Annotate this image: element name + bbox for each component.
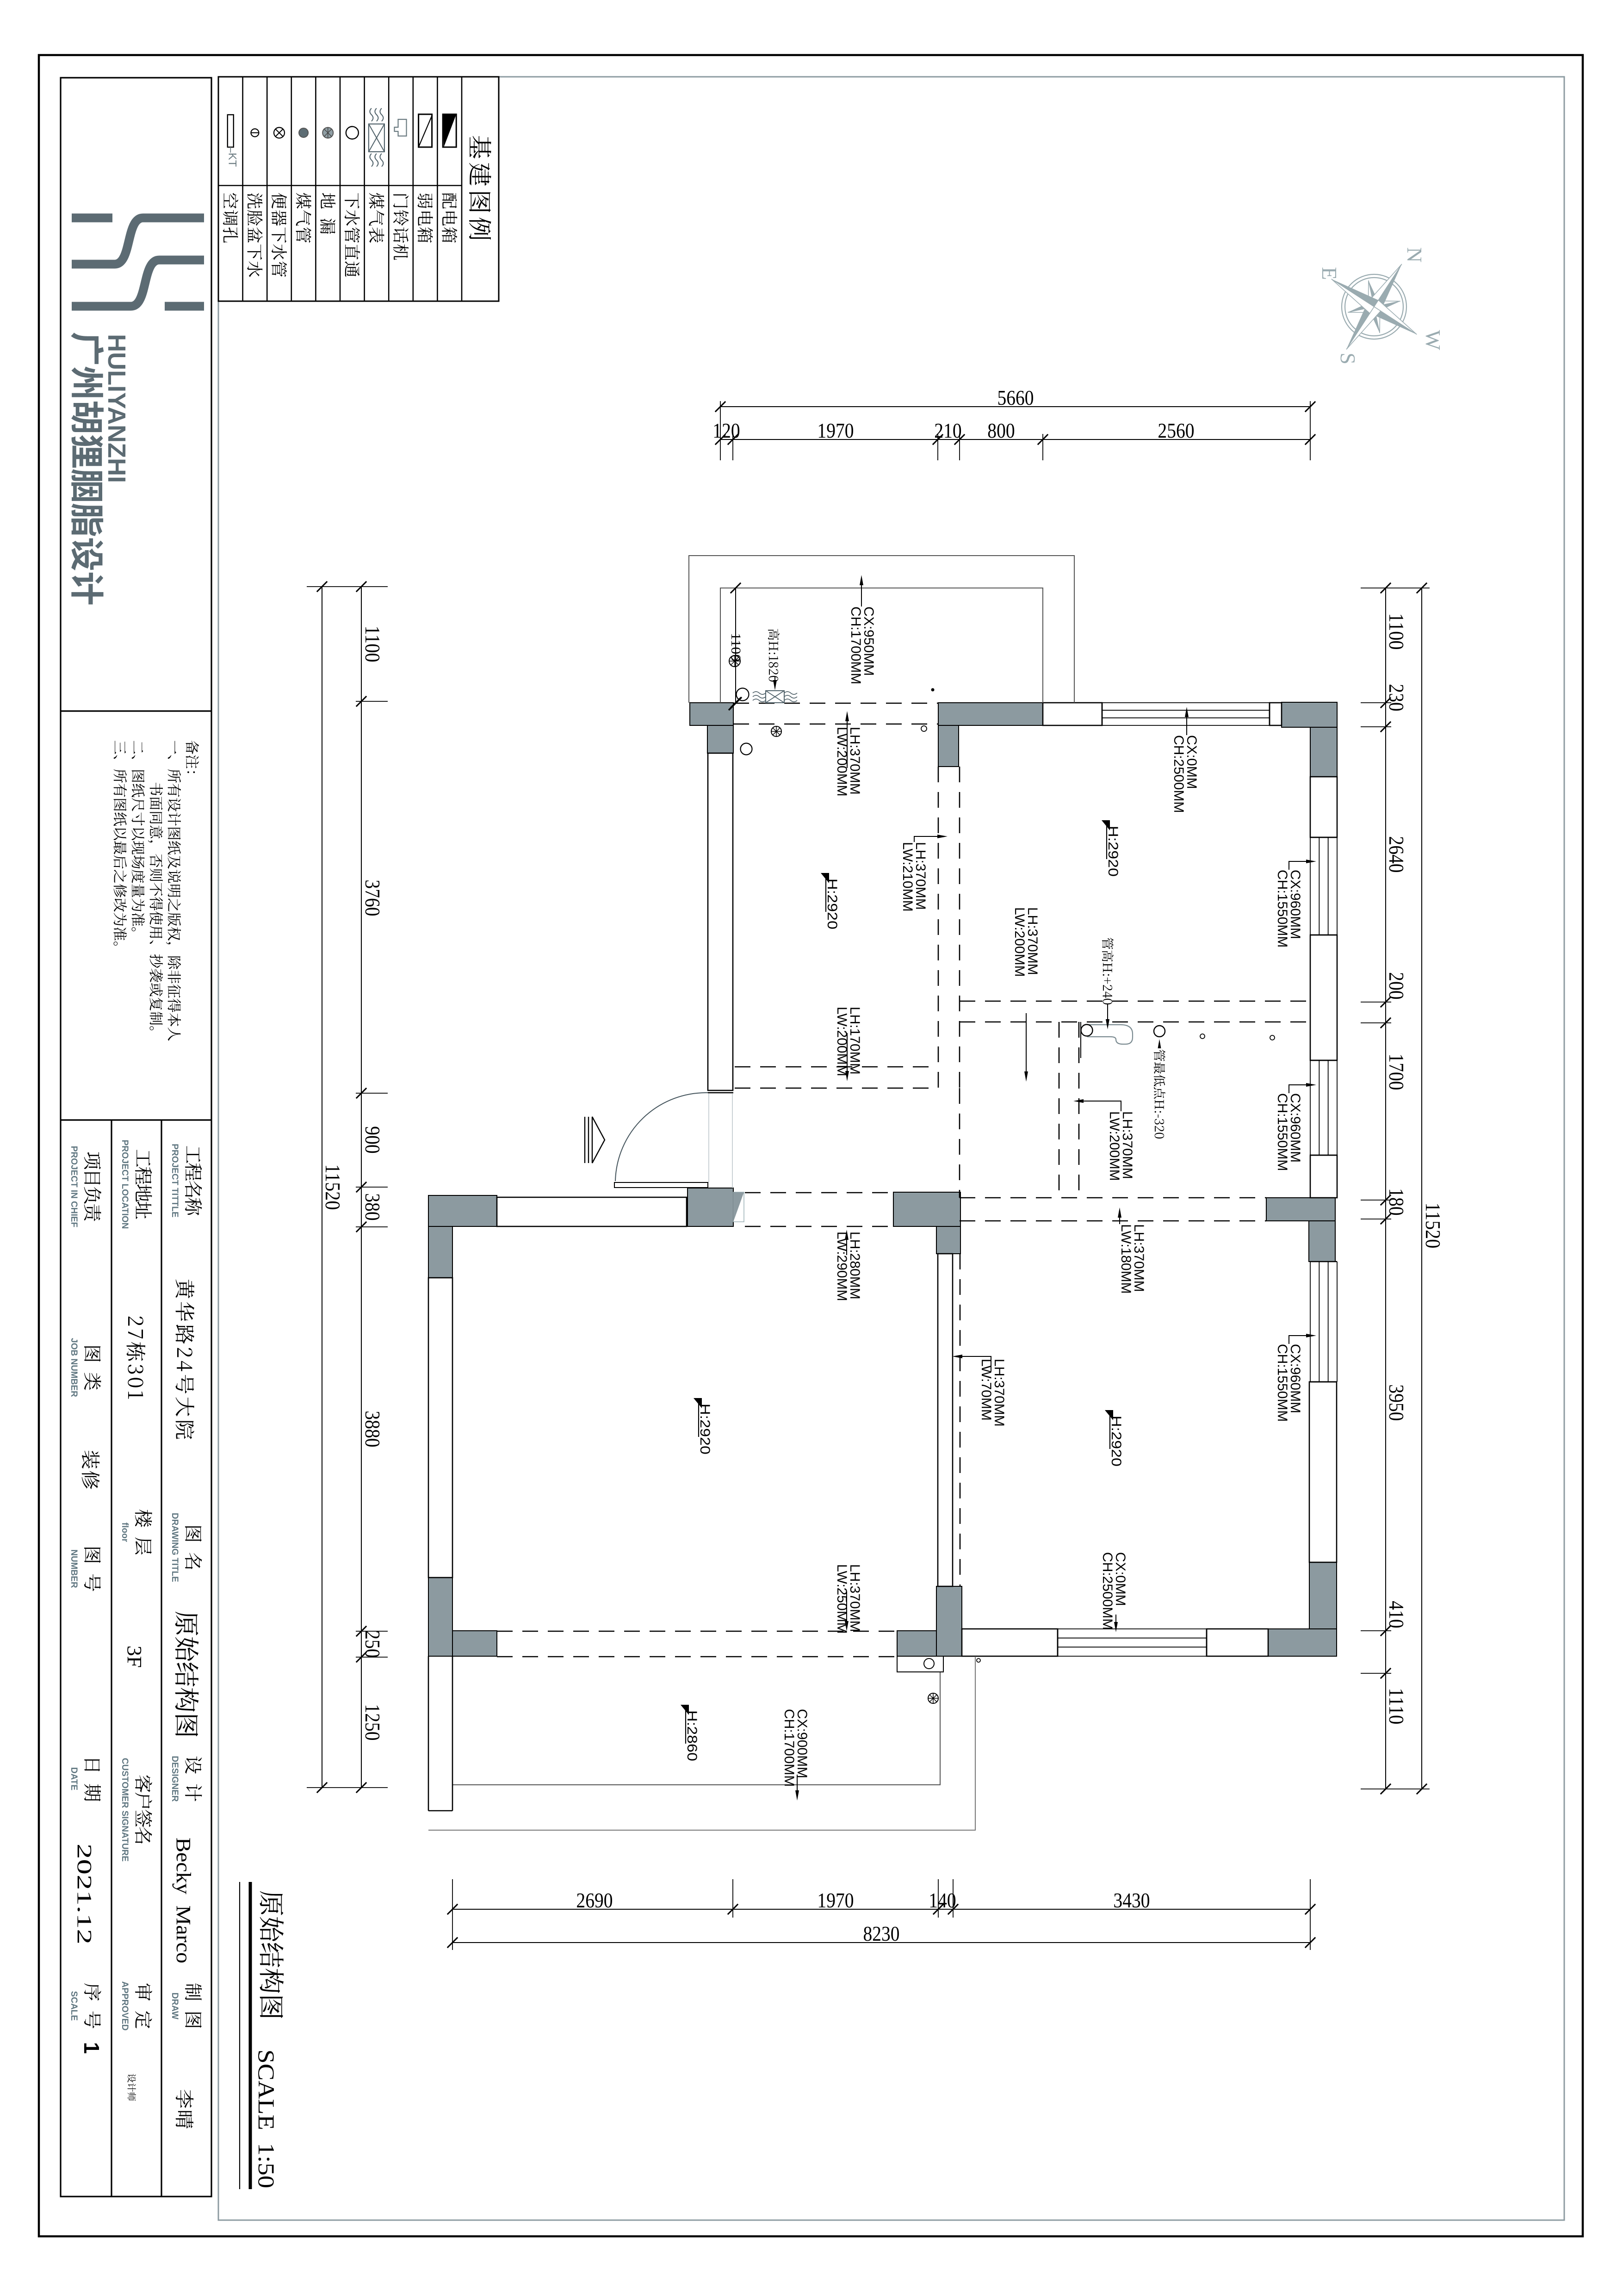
svg-text:CUSTOMER SIGNATURE: CUSTOMER SIGNATURE [120, 1758, 130, 1862]
svg-text:3F: 3F [123, 1646, 146, 1668]
svg-text:1970: 1970 [817, 419, 854, 442]
svg-text:LW:210MM: LW:210MM [900, 842, 915, 912]
svg-text:PROJECT LOCATION: PROJECT LOCATION [120, 1140, 130, 1229]
svg-text:HULIYANZHI: HULIYANZHI [103, 334, 130, 483]
svg-text:900: 900 [361, 1126, 384, 1153]
svg-text:E: E [1318, 267, 1341, 280]
svg-text:2021.12: 2021.12 [73, 1844, 96, 1944]
svg-text:3430: 3430 [1113, 1888, 1150, 1912]
svg-text:3760: 3760 [361, 879, 384, 916]
svg-text:H:2920: H:2920 [824, 879, 840, 929]
svg-text:1250: 1250 [361, 1704, 384, 1740]
svg-text:floor: floor [120, 1522, 130, 1542]
svg-text:CH:1550MM: CH:1550MM [1275, 1344, 1290, 1422]
svg-text:1: 1 [80, 2042, 104, 2054]
svg-text:N: N [1403, 247, 1426, 262]
svg-text:11520: 11520 [321, 1164, 345, 1210]
svg-text:LW:290MM: LW:290MM [834, 1232, 849, 1301]
svg-text:CH:1700MM: CH:1700MM [848, 606, 863, 684]
svg-text:S: S [1336, 353, 1360, 365]
svg-text:180: 180 [1385, 1188, 1408, 1215]
svg-text:LW:200MM: LW:200MM [1107, 1111, 1122, 1181]
svg-text:SCALE 1:50: SCALE 1:50 [254, 2049, 279, 2188]
svg-text:11520: 11520 [1421, 1203, 1445, 1249]
svg-text:H:2920: H:2920 [1105, 826, 1121, 877]
svg-text:KT: KT [226, 153, 238, 167]
svg-text:140: 140 [929, 1888, 956, 1912]
svg-text:1110: 1110 [1385, 1688, 1408, 1724]
svg-text:W: W [1421, 330, 1445, 350]
svg-text:LW:180MM: LW:180MM [1118, 1224, 1134, 1294]
svg-text:120: 120 [712, 419, 740, 442]
svg-text:200: 200 [1385, 972, 1408, 999]
svg-text:DRAWING TITLE: DRAWING TITLE [170, 1513, 180, 1582]
svg-text:H:2920: H:2920 [697, 1404, 712, 1454]
svg-text:LW:200MM: LW:200MM [1012, 907, 1027, 977]
svg-text:3950: 3950 [1385, 1384, 1408, 1421]
svg-text:Becky Marco: Becky Marco [172, 1838, 195, 1963]
svg-text:CH:1550MM: CH:1550MM [1275, 870, 1290, 947]
svg-text:380: 380 [361, 1193, 384, 1220]
svg-text:410: 410 [1385, 1601, 1408, 1628]
svg-text:1100: 1100 [361, 625, 384, 662]
svg-text:210: 210 [934, 419, 961, 442]
svg-text:H:2860: H:2860 [684, 1710, 700, 1761]
svg-text:3880: 3880 [361, 1411, 384, 1447]
svg-text:5660: 5660 [997, 386, 1034, 409]
svg-text:NUMBER: NUMBER [69, 1549, 79, 1588]
svg-text:2560: 2560 [1158, 419, 1194, 442]
svg-text:250: 250 [361, 1630, 384, 1658]
svg-text:DESIGNER: DESIGNER [170, 1756, 180, 1802]
svg-text:1100: 1100 [1385, 613, 1408, 650]
svg-text:1700: 1700 [1385, 1053, 1408, 1090]
svg-text:2690: 2690 [576, 1888, 613, 1912]
svg-text:800: 800 [987, 419, 1015, 442]
svg-text:SCALE: SCALE [69, 1991, 79, 2021]
svg-text:DATE: DATE [69, 1767, 79, 1790]
svg-text:LW:70MM: LW:70MM [979, 1359, 994, 1421]
svg-text:CH:1550MM: CH:1550MM [1275, 1093, 1290, 1171]
svg-text:CH:2500MM: CH:2500MM [1171, 735, 1186, 813]
svg-text:2640: 2640 [1385, 836, 1408, 873]
svg-text:H:2920: H:2920 [1109, 1416, 1124, 1467]
svg-text:PROJECT TITTLE: PROJECT TITTLE [170, 1144, 180, 1217]
svg-text:APPROVED: APPROVED [120, 1981, 130, 2031]
svg-text:230: 230 [1385, 684, 1408, 711]
svg-text:DRAW: DRAW [170, 1993, 180, 2019]
svg-text:JOB NUMBER: JOB NUMBER [69, 1338, 79, 1397]
svg-text:CH:1700MM: CH:1700MM [781, 1709, 797, 1787]
svg-text:CH:2500MM: CH:2500MM [1100, 1552, 1115, 1630]
svg-text:PROJECT IN CHIEF: PROJECT IN CHIEF [69, 1146, 79, 1227]
svg-text:8230: 8230 [863, 1922, 900, 1945]
svg-text:1970: 1970 [817, 1888, 854, 1912]
